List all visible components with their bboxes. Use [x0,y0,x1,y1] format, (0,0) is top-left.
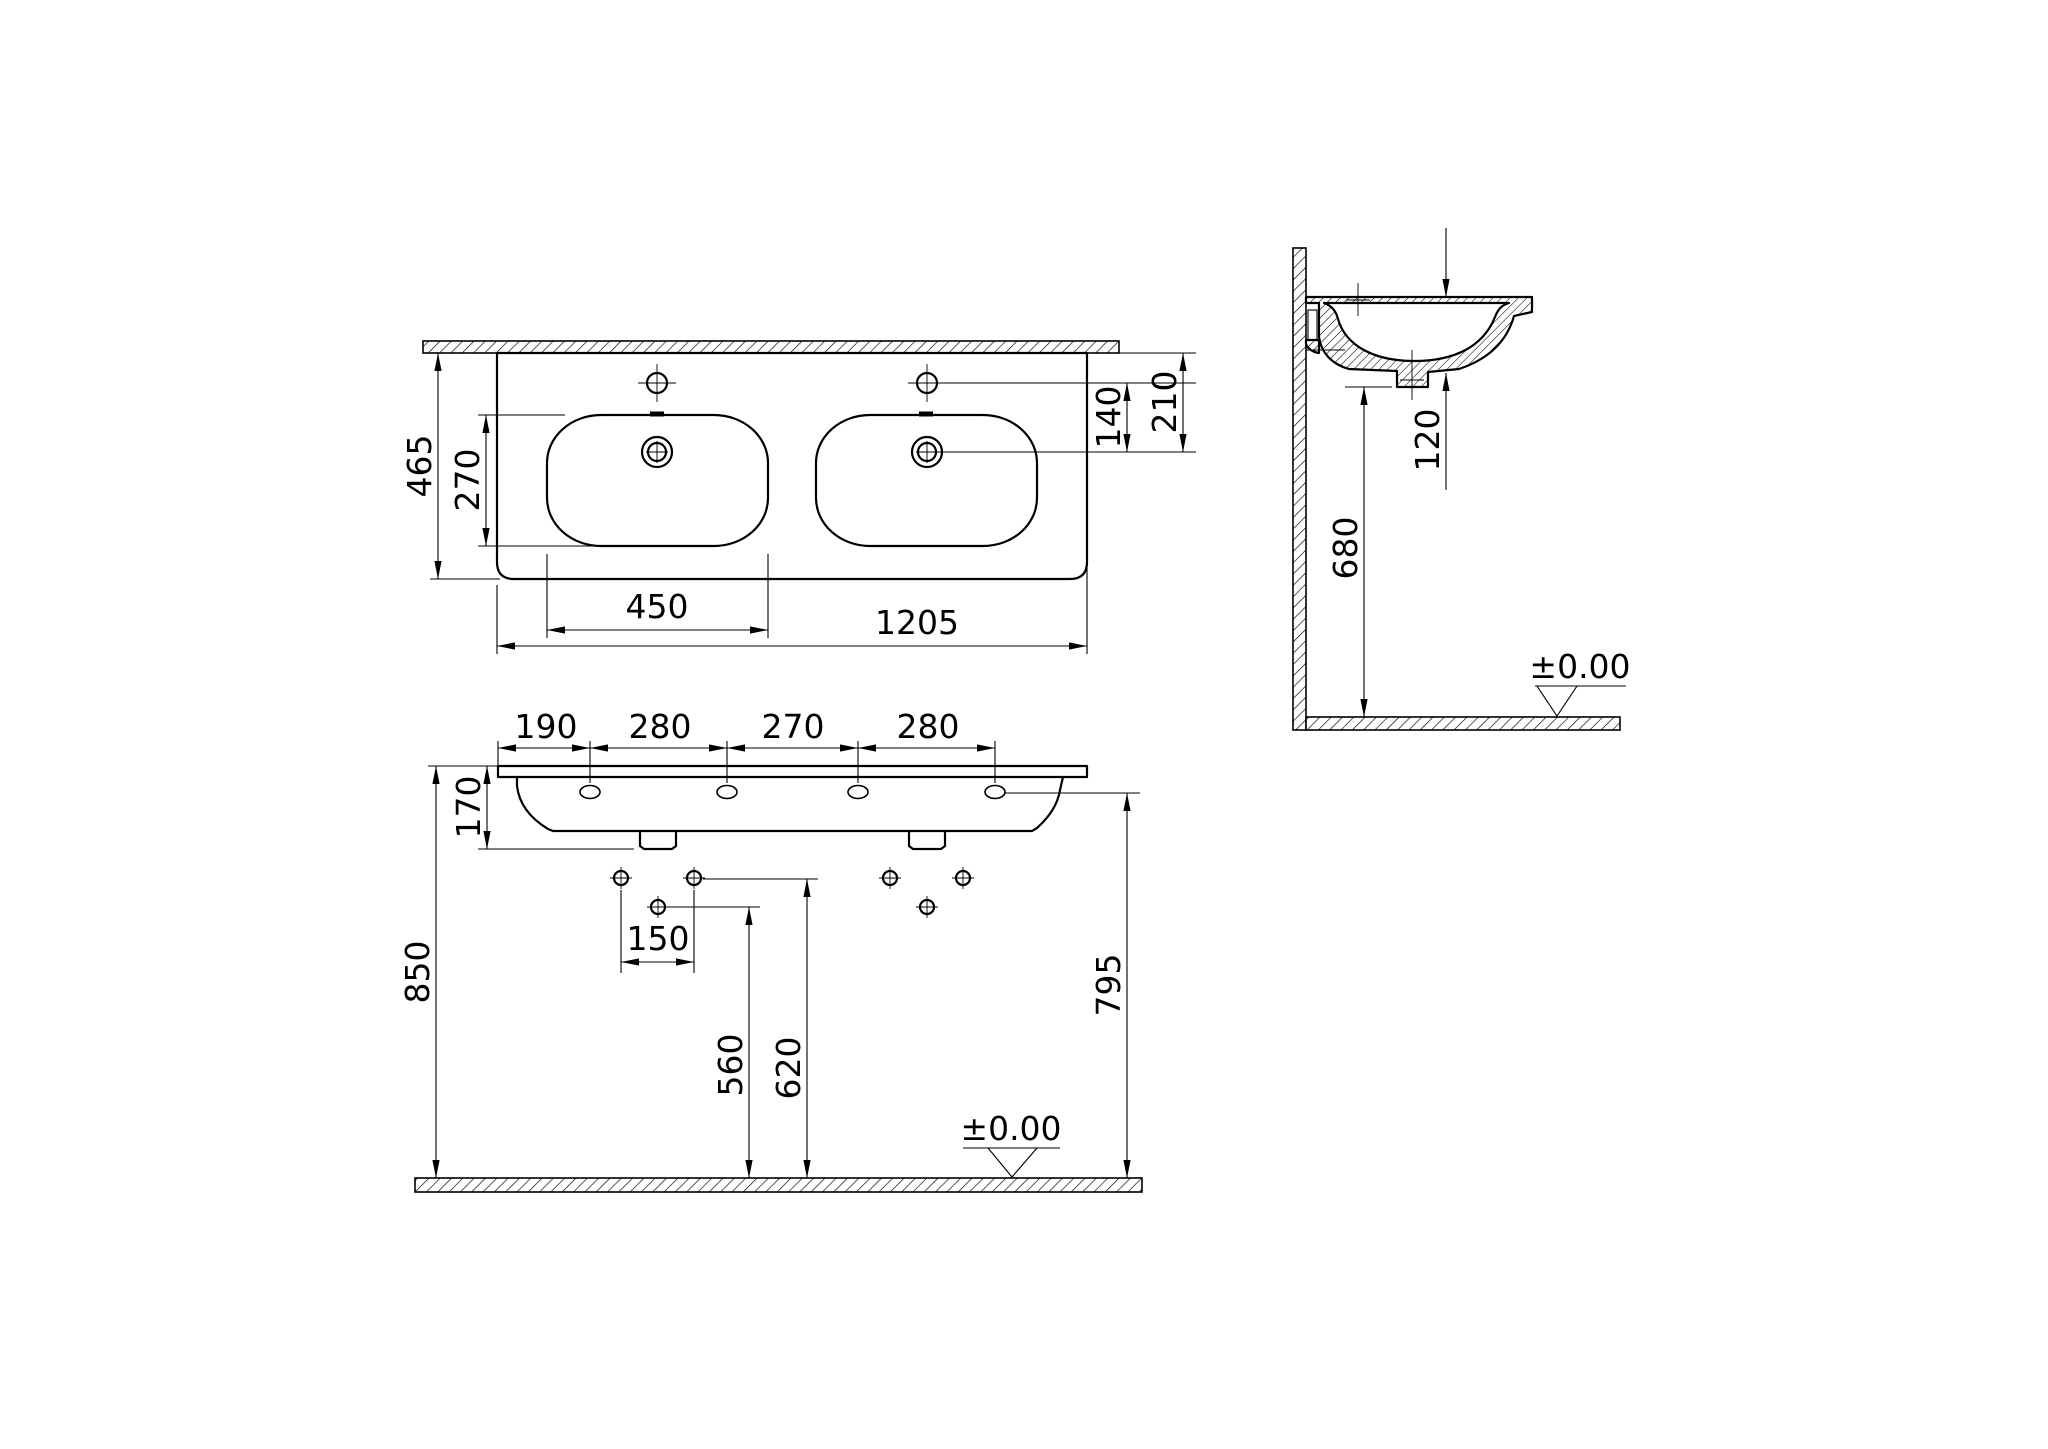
plan-wall-hatch [423,341,1119,353]
washbasin-dimension-drawing: 465 270 140 210 450 1205 [0,0,2048,1449]
side-dimensions: 120 680 [1326,373,1447,717]
technical-drawing-page: 465 270 140 210 450 1205 [0,0,2048,1449]
front-bolt-holes [610,867,974,918]
dim-label-spacing-280a: 280 [629,707,692,746]
front-datum-triangle [988,1148,1037,1177]
front-floor-datum: ±0.00 [960,1109,1061,1177]
front-extension-lines [428,741,1140,973]
plan-right-bowl [816,415,1037,546]
side-floor-datum: ±0.00 [1529,647,1630,716]
side-wall-hatch [1293,248,1306,730]
plan-extension-lines [430,353,1196,654]
side-datum-label: ±0.00 [1529,647,1630,686]
dim-label-rear-to-drain: 210 [1145,371,1184,434]
front-rim-slab [498,766,1087,777]
side-wall-ledge [1306,340,1319,353]
front-fixing-hole-2 [717,786,737,799]
front-view: 190 280 270 280 170 850 150 560 620 795 … [398,707,1142,1192]
front-datum-label: ±0.00 [960,1109,1061,1148]
dim-label-bowl-depth: 270 [448,449,487,512]
dim-label-trap-height: 560 [711,1034,750,1097]
front-right-drain-boss [909,831,945,849]
side-datum-triangle [1537,686,1577,716]
dim-label-rim-height: 850 [398,941,437,1004]
dim-label-faucet-to-drain: 140 [1089,386,1128,449]
dim-label-spacing-270: 270 [762,707,825,746]
side-view: 120 680 ±0.00 [1293,228,1631,730]
dim-label-bowl-width: 450 [626,587,689,626]
dim-label-underside-height: 680 [1326,517,1365,580]
side-fixing-channel [1308,310,1317,340]
front-fixing-hole-1 [580,786,600,799]
side-basin-section [1306,297,1532,387]
dim-label-side-hole-height: 795 [1089,954,1128,1017]
dim-label-basin-depth: 120 [1408,409,1447,472]
plan-left-bowl [547,415,768,546]
front-left-drain-boss [640,831,676,849]
side-floor-hatch [1306,717,1620,730]
plan-dimensions: 465 270 140 210 450 1205 [400,353,1184,646]
dim-label-body-height: 170 [449,776,488,839]
dim-label-spacing-190: 190 [515,707,578,746]
dim-label-bolt-spacing: 150 [627,919,690,958]
front-fixing-hole-4 [985,786,1005,799]
dim-label-overall-depth: 465 [400,435,439,498]
dim-label-fixing-height: 620 [769,1037,808,1100]
dim-label-overall-width: 1205 [875,603,959,642]
front-floor-hatch [415,1178,1142,1192]
plan-view: 465 270 140 210 450 1205 [400,341,1196,654]
dim-label-spacing-280b: 280 [897,707,960,746]
front-body-outline [517,777,1063,831]
front-fixing-hole-3 [848,786,868,799]
